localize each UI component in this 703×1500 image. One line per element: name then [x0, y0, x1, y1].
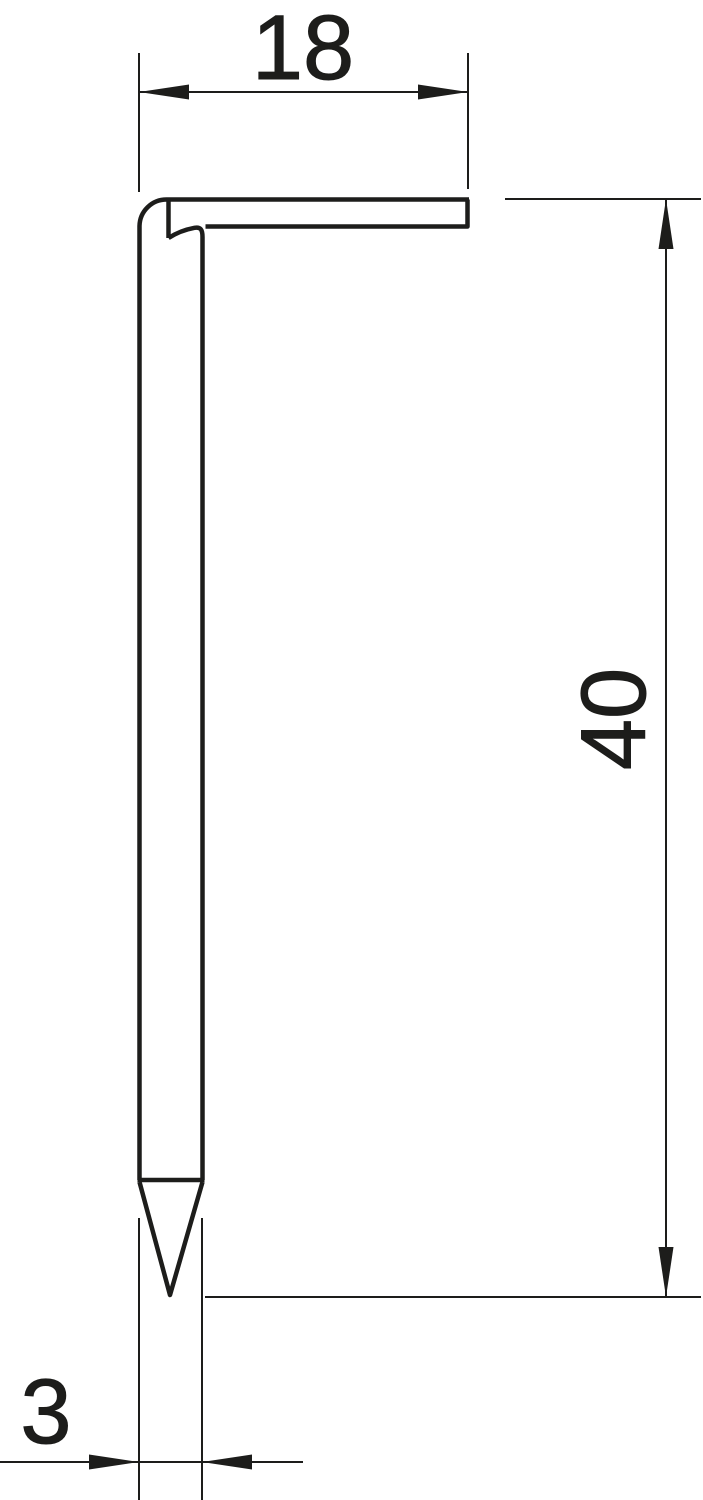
shank-length-dimension-label: 40	[563, 668, 665, 770]
technical-drawing-page: 18 40 3	[0, 0, 703, 1500]
hook-arm-endcap-and-bottom-edge	[206, 200, 468, 227]
nail-outline	[138, 200, 470, 1296]
arrowhead-left-icon	[202, 1455, 252, 1470]
shank-diameter-dimension-label: 3	[20, 1361, 71, 1463]
arrowhead-down-icon	[659, 1247, 674, 1297]
arrowhead-right-icon	[418, 85, 468, 100]
technical-drawing-canvas: 18 40 3	[0, 0, 703, 1500]
arrowhead-right-icon	[89, 1455, 139, 1470]
nail-point-taper	[140, 1182, 203, 1295]
arrowhead-up-icon	[659, 199, 674, 249]
hook-width-dimension-label: 18	[252, 0, 354, 99]
bend-fillet-and-shank-right-edge	[169, 228, 203, 1180]
dimension-hook-width: 18	[139, 0, 468, 192]
arrowhead-left-icon	[139, 85, 189, 100]
dimension-shank-length: 40	[205, 199, 701, 1297]
dimension-shank-diameter: 3	[0, 1218, 303, 1500]
nail-shank-left-and-hook-top-edge	[140, 200, 470, 1181]
